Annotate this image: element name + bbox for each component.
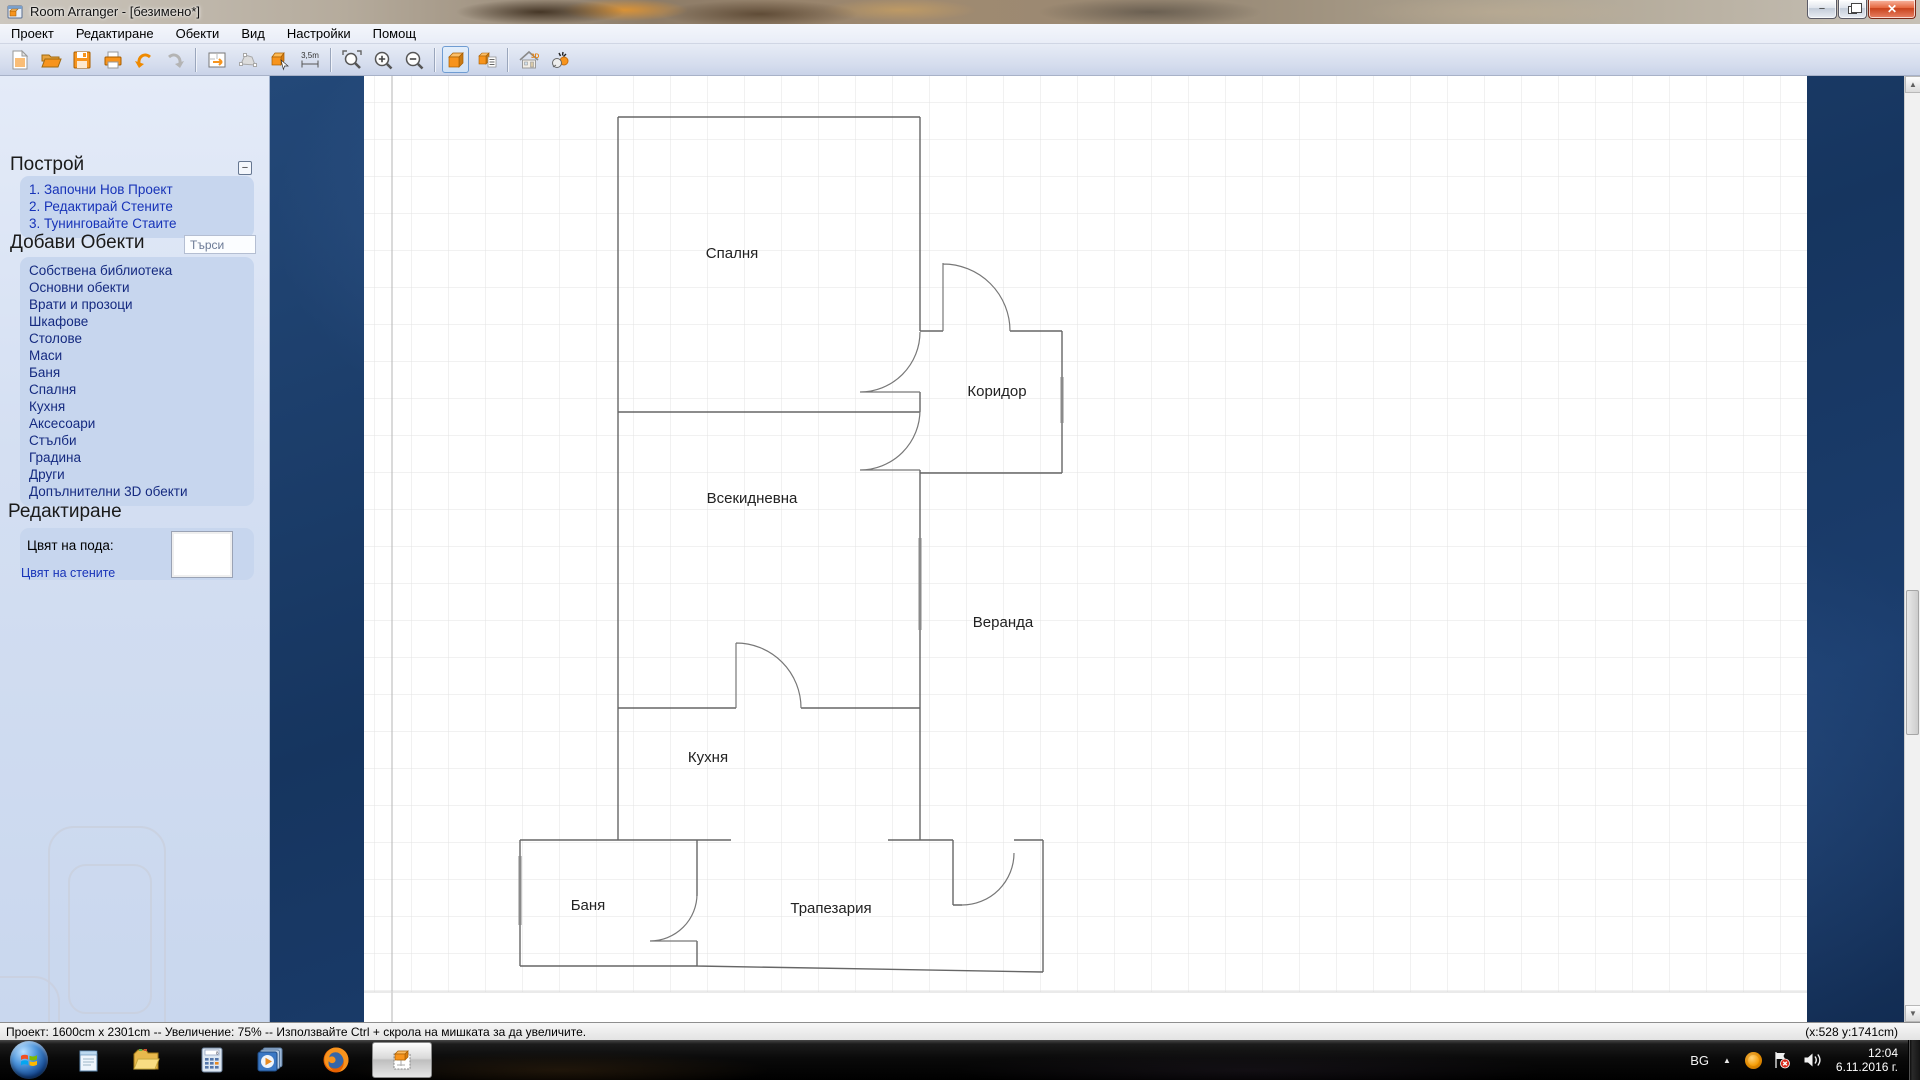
add-object-icon: [268, 49, 290, 71]
menu-edit[interactable]: Редактиране: [65, 24, 165, 44]
vertical-scrollbar[interactable]: ▲ ▼: [1904, 76, 1920, 1022]
add-object-button[interactable]: [265, 46, 292, 73]
measure-icon: 3,5m: [299, 49, 321, 71]
minimize-button[interactable]: −: [1807, 0, 1837, 19]
taskbar-room-arranger-active[interactable]: [372, 1042, 432, 1078]
house-3d-icon: 3D: [518, 49, 540, 71]
add-objects-panel: Собствена библиотека Основни обекти Врат…: [20, 257, 254, 506]
sidebar-item-doors-windows[interactable]: Врати и прозоци: [20, 296, 254, 313]
media-player-icon: [255, 1045, 285, 1075]
view-3d-button[interactable]: [442, 46, 469, 73]
room-label-kitchen: Кухня: [688, 749, 728, 766]
menu-help[interactable]: Помощ: [362, 24, 427, 44]
toolbar-separator: [507, 48, 508, 72]
save-button[interactable]: [68, 46, 95, 73]
tray-expand-icon: ▲: [1723, 1056, 1731, 1065]
open-button[interactable]: [37, 46, 64, 73]
titlebar: Room Arranger - [безимено*] − ✕: [0, 0, 1920, 24]
colors-button[interactable]: [546, 46, 573, 73]
taskbar-media-player[interactable]: [248, 1043, 292, 1077]
menu-project[interactable]: Проект: [0, 24, 65, 44]
toolbar-separator: [434, 48, 435, 72]
sidebar-item-tune-rooms[interactable]: 3. Тунинговайте Стаите: [20, 215, 254, 232]
svg-text:3D: 3D: [531, 53, 540, 60]
page-grid: [364, 76, 1807, 992]
add-objects-section-title: Добави Обекти: [10, 232, 145, 254]
sidebar-item-stairs[interactable]: Стълби: [20, 432, 254, 449]
scrollbar-thumb[interactable]: [1906, 590, 1919, 735]
room-label-corridor: Коридор: [967, 383, 1026, 400]
menu-view[interactable]: Вид: [230, 24, 276, 44]
zoom-window-icon: [341, 49, 363, 71]
zoom-out-icon: [403, 49, 425, 71]
new-document-icon: [9, 49, 31, 71]
close-icon: ✕: [1887, 2, 1897, 16]
sidebar-item-basic-objects[interactable]: Основни обекти: [20, 279, 254, 296]
collapse-section-button[interactable]: −: [238, 161, 252, 175]
restore-button[interactable]: [1838, 0, 1867, 19]
scroll-down-icon: ▼: [1909, 1009, 1917, 1018]
sidebar-item-new-project[interactable]: 1. Започни Нов Проект: [20, 181, 254, 198]
folder-icon: [131, 1045, 161, 1075]
tray-time: 12:04: [1836, 1046, 1898, 1060]
sidebar-item-bathroom[interactable]: Баня: [20, 364, 254, 381]
plan-editor-button[interactable]: [203, 46, 230, 73]
print-button[interactable]: [99, 46, 126, 73]
zoom-out-button[interactable]: [400, 46, 427, 73]
volume-icon[interactable]: [1802, 1050, 1822, 1070]
scroll-up-icon: ▲: [1909, 80, 1917, 89]
tray-date: 6.11.2016 г.: [1836, 1060, 1898, 1074]
scroll-down-button[interactable]: ▼: [1905, 1005, 1920, 1022]
walls-icon: [237, 49, 259, 71]
taskbar: 8: [0, 1040, 1920, 1080]
redo-button[interactable]: [161, 46, 188, 73]
tray-expand-button[interactable]: ▲: [1723, 1056, 1731, 1065]
sidebar-item-cabinets[interactable]: Шкафове: [20, 313, 254, 330]
restore-icon: [1848, 6, 1857, 14]
status-cursor-position: (x:528 y:1741cm): [1805, 1025, 1898, 1039]
room-label-dining-room: Трапезария: [790, 900, 871, 917]
clock[interactable]: 12:04 6.11.2016 г.: [1836, 1046, 1898, 1074]
open-folder-icon: [40, 49, 62, 71]
sidebar-item-bedroom[interactable]: Спалня: [20, 381, 254, 398]
sidebar-item-additional-3d[interactable]: Допълнителни 3D обекти: [20, 483, 254, 500]
build-panel: 1. Започни Нов Проект 2. Редактирай Стен…: [20, 176, 254, 238]
floor-color-swatch[interactable]: [171, 531, 233, 578]
sidebar-item-garden[interactable]: Градина: [20, 449, 254, 466]
scroll-up-button[interactable]: ▲: [1905, 76, 1920, 93]
sidebar-item-accessories[interactable]: Аксесоари: [20, 415, 254, 432]
plan-canvas[interactable]: Спалня Коридор Всекидневна Веранда Кухня…: [270, 76, 1920, 1022]
plan-editor-icon: [206, 49, 228, 71]
notepad-icon: [74, 1046, 102, 1074]
taskbar-notepad[interactable]: [66, 1043, 110, 1077]
calculator-icon: 8: [199, 1046, 225, 1074]
zoom-window-button[interactable]: [338, 46, 365, 73]
zoom-in-button[interactable]: [369, 46, 396, 73]
undo-button[interactable]: [130, 46, 157, 73]
screen: Room Arranger - [безимено*] − ✕ Проект Р…: [0, 0, 1920, 1080]
statusbar: Проект: 1600cm x 2301cm -- Увеличение: 7…: [0, 1022, 1920, 1040]
sofa-watermark: [0, 976, 60, 1022]
taskbar-firefox[interactable]: [314, 1043, 358, 1077]
close-button[interactable]: ✕: [1868, 0, 1916, 19]
toolbar-separator: [195, 48, 196, 72]
status-project-info: Проект: 1600cm x 2301cm -- Увеличение: 7…: [6, 1025, 586, 1039]
toolbar-separator: [330, 48, 331, 72]
room-label-veranda: Веранда: [973, 614, 1034, 631]
amber-circle-icon: [1745, 1052, 1762, 1069]
redo-icon: [164, 49, 186, 71]
room-label-bathroom: Баня: [571, 897, 606, 914]
print-icon: [102, 49, 124, 71]
sidebar-item-tables[interactable]: Маси: [20, 347, 254, 364]
menu-objects[interactable]: Обекти: [165, 24, 231, 44]
system-tray: BG ▲ 12:04 6.11.2016 г.: [1690, 1040, 1920, 1080]
room-label-bedroom: Спалня: [706, 245, 758, 262]
sidebar-item-own-library[interactable]: Собствена библиотека: [20, 262, 254, 279]
collapse-icon: −: [242, 162, 248, 174]
window-controls: − ✕: [1806, 0, 1916, 19]
sidebar: Построй − 1. Започни Нов Проект 2. Редак…: [0, 76, 270, 1022]
zoom-in-icon: [372, 49, 394, 71]
object-list-button[interactable]: [473, 46, 500, 73]
toolbar: 3,5m: [0, 44, 1920, 76]
search-input[interactable]: [184, 235, 256, 254]
edit-walls-button[interactable]: [234, 46, 261, 73]
measure-button[interactable]: 3,5m: [296, 46, 323, 73]
flag-alert-icon: [1772, 1050, 1792, 1070]
taskbar-calculator[interactable]: 8: [190, 1043, 234, 1077]
undo-icon: [133, 49, 155, 71]
menu-settings[interactable]: Настройки: [276, 24, 362, 44]
window-title: Room Arranger - [безимено*]: [30, 4, 200, 19]
color-splash-icon: [549, 49, 571, 71]
show-desktop-button[interactable]: [1908, 1040, 1920, 1080]
action-center-icon[interactable]: [1772, 1050, 1792, 1070]
app-icon: [7, 4, 23, 20]
sidebar-item-edit-walls[interactable]: 2. Редактирай Стените: [20, 198, 254, 215]
language-indicator[interactable]: BG: [1690, 1053, 1709, 1068]
save-icon: [71, 49, 93, 71]
room-arranger-icon: [388, 1046, 416, 1074]
floor-color-label: Цвят на пода:: [27, 538, 114, 553]
new-project-button[interactable]: [6, 46, 33, 73]
minimize-icon: −: [1819, 3, 1825, 15]
object-list-icon: [476, 49, 498, 71]
room-label-living-room: Всекидневна: [707, 490, 798, 507]
edit-section-title: Редактиране: [8, 501, 122, 523]
sofa-watermark: [68, 864, 152, 1014]
speaker-icon: [1802, 1050, 1822, 1070]
floor-plan: Спалня Коридор Всекидневна Веранда Кухня…: [270, 76, 1904, 1022]
sidebar-item-kitchen[interactable]: Кухня: [20, 398, 254, 415]
windows-logo-icon: [19, 1050, 39, 1070]
firefox-icon: [321, 1045, 351, 1075]
sidebar-item-other[interactable]: Други: [20, 466, 254, 483]
sidebar-item-chairs[interactable]: Столове: [20, 330, 254, 347]
house-3d-button[interactable]: 3D: [515, 46, 542, 73]
taskbar-explorer[interactable]: [124, 1043, 168, 1077]
build-section-title: Построй: [10, 154, 84, 176]
measure-label: 3,5m: [301, 51, 319, 60]
tray-app-icon[interactable]: [1745, 1052, 1762, 1069]
menubar: Проект Редактиране Обекти Вид Настройки …: [0, 24, 1920, 44]
cube-3d-icon: [445, 49, 467, 71]
start-button[interactable]: [10, 1041, 48, 1079]
wall-color-link[interactable]: Цвят на стените: [21, 566, 115, 580]
main-area: Построй − 1. Започни Нов Проект 2. Редак…: [0, 76, 1920, 1022]
